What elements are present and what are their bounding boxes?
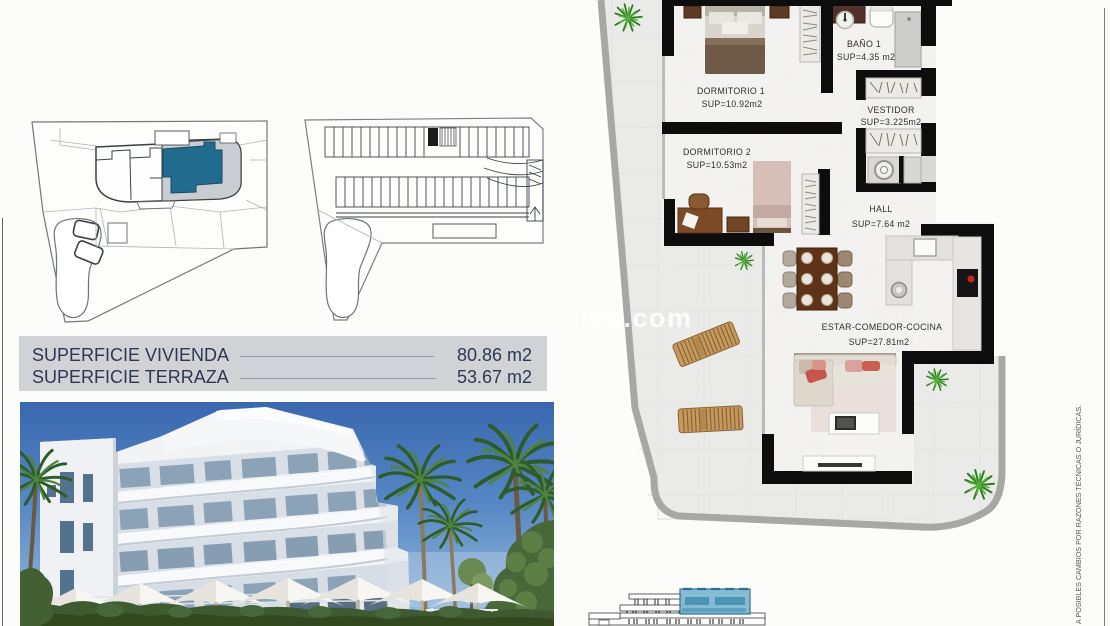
svg-text:SUP=27.81m2: SUP=27.81m2 [849,337,910,347]
svg-text:SUP=10.53m2: SUP=10.53m2 [687,160,748,170]
svg-text:HALL: HALL [869,204,892,214]
svg-text:tes.com: tes.com [580,303,693,333]
svg-text:BAÑO 1: BAÑO 1 [847,39,881,49]
svg-text:DORMITORIO 2: DORMITORIO 2 [683,147,751,157]
svg-text:DORMITORIO 1: DORMITORIO 1 [697,86,765,96]
svg-text:VESTIDOR: VESTIDOR [867,105,914,115]
svg-text:SUP=3.225m2: SUP=3.225m2 [861,117,922,127]
svg-text:SUP=10.92m2: SUP=10.92m2 [702,99,763,109]
svg-text:ESTAR-COMEDOR-COCINA: ESTAR-COMEDOR-COCINA [822,322,943,332]
svg-text:SUP=7.64 m2: SUP=7.64 m2 [852,219,910,229]
svg-text:SUP=4.35 m2: SUP=4.35 m2 [837,52,895,62]
